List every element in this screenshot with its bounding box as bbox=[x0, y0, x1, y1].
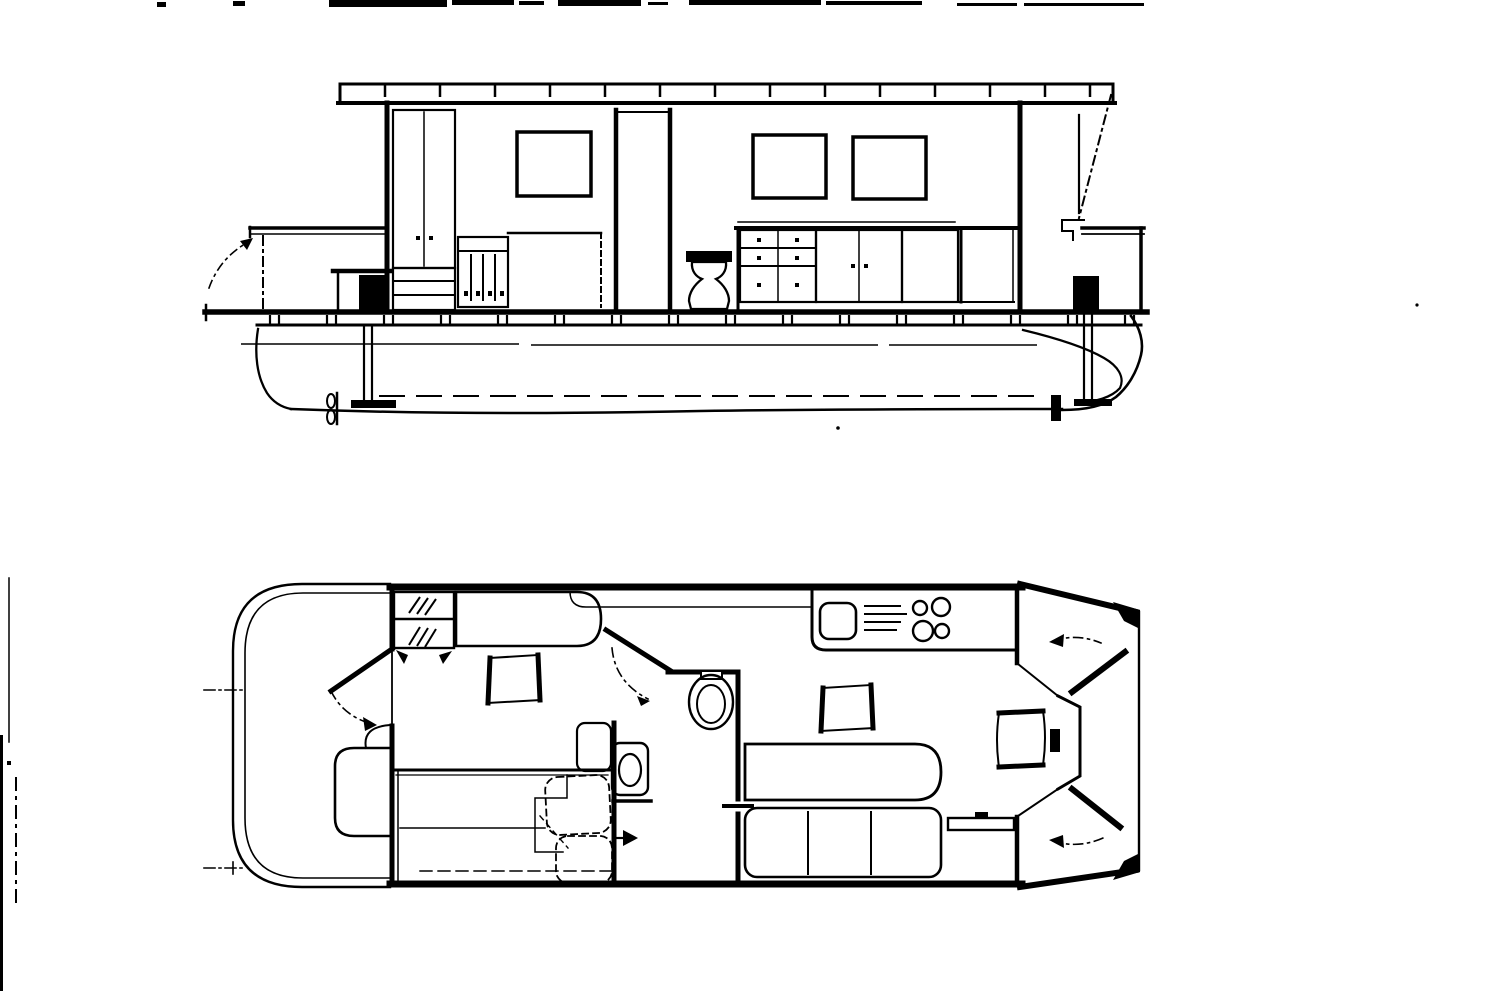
washbasin-cabinet bbox=[612, 743, 648, 795]
deck-plan-view bbox=[204, 584, 1140, 887]
chair-arm bbox=[999, 765, 1043, 767]
swing-arrowhead bbox=[1049, 634, 1064, 647]
settee-3-cushion bbox=[745, 808, 941, 877]
chair-back bbox=[490, 655, 538, 658]
artifact bbox=[7, 761, 11, 765]
bow-cleat-top bbox=[1113, 602, 1140, 629]
armchair-saloon bbox=[821, 685, 873, 731]
chest-outline bbox=[393, 268, 455, 310]
bow-door-leaf-top bbox=[1072, 652, 1125, 692]
artifact bbox=[826, 1, 922, 5]
stove-burner bbox=[935, 624, 949, 638]
artifact-left-border bbox=[0, 735, 3, 991]
wardrobe-handle bbox=[416, 236, 420, 240]
bow-structure bbox=[1051, 95, 1144, 421]
side-elevation-view bbox=[205, 84, 1147, 424]
cabinet-knob bbox=[864, 264, 868, 268]
counter-front bbox=[812, 592, 1016, 650]
artifact bbox=[558, 0, 641, 6]
toilet-pedestal bbox=[689, 262, 729, 309]
toilet-bowl-outer bbox=[689, 675, 733, 729]
artifact bbox=[329, 0, 447, 7]
cabinet-knob bbox=[851, 264, 855, 268]
washbasin-bowl bbox=[619, 754, 641, 786]
bathroom-partition bbox=[616, 110, 670, 310]
helm-chair bbox=[997, 711, 1045, 767]
chair-arm bbox=[538, 655, 540, 700]
bedroom bbox=[396, 723, 614, 884]
drawer-knob bbox=[757, 256, 761, 260]
swing-arrowhead bbox=[1049, 835, 1064, 848]
swing-arrowhead bbox=[637, 696, 650, 706]
locker-knob bbox=[488, 291, 492, 296]
wardrobe bbox=[393, 110, 455, 268]
artifact bbox=[519, 1, 544, 5]
propeller-blade bbox=[327, 394, 335, 408]
cabin-window-3 bbox=[853, 137, 926, 199]
bow-step bbox=[1062, 220, 1084, 240]
hatched-locker bbox=[394, 592, 454, 648]
chair-front bbox=[821, 728, 873, 731]
drawer-knob bbox=[795, 283, 799, 287]
bow-hull-outer bbox=[1062, 316, 1142, 410]
berth-elevation bbox=[508, 233, 601, 307]
shelf-tab bbox=[975, 812, 988, 819]
stern-deck-seat bbox=[335, 725, 390, 836]
door-stop-arrow bbox=[623, 830, 638, 846]
side-shelf bbox=[948, 812, 1014, 830]
chair-back bbox=[823, 685, 871, 688]
cabin-window-2 bbox=[753, 135, 826, 198]
stern-door-leaf bbox=[331, 649, 392, 691]
roof-slab bbox=[338, 84, 1115, 103]
helm-console bbox=[1058, 696, 1080, 789]
chair-arm bbox=[999, 711, 1043, 713]
galley-plan bbox=[812, 592, 1016, 650]
drawer-knob bbox=[795, 238, 799, 242]
chair-front bbox=[488, 700, 540, 703]
waterline-upper bbox=[241, 344, 1037, 345]
locker-knob bbox=[464, 291, 468, 296]
artifact-dot bbox=[1415, 303, 1418, 306]
artifact bbox=[957, 3, 1017, 6]
drainboard-lines bbox=[864, 606, 907, 630]
side-shelf-line bbox=[570, 592, 810, 607]
drawer-knob bbox=[795, 256, 799, 260]
stove-burner bbox=[932, 598, 950, 616]
cabin-window-1 bbox=[517, 132, 591, 196]
bow-hull-inner bbox=[1023, 330, 1122, 403]
plan-hull-outline bbox=[204, 584, 1140, 887]
windshield-dashdot bbox=[1079, 95, 1111, 218]
stern-hull-curve bbox=[256, 329, 291, 409]
bedside-cabinet bbox=[577, 723, 611, 771]
drawer-chest bbox=[393, 268, 455, 310]
swing-tick bbox=[439, 651, 452, 664]
toilet-elevation bbox=[686, 251, 732, 309]
deck-and-hull bbox=[205, 305, 1147, 413]
arc-arrowhead bbox=[240, 238, 253, 250]
artifact bbox=[1024, 3, 1144, 6]
bath-diagonal-wall bbox=[606, 630, 671, 671]
bathroom bbox=[606, 630, 752, 884]
bulkhead-diagonal-top bbox=[1018, 664, 1058, 696]
stern-box bbox=[359, 275, 388, 311]
blanket-diagonal bbox=[540, 816, 568, 848]
hatch-marks bbox=[409, 597, 436, 647]
chair-arm bbox=[871, 685, 873, 728]
drawer-knob bbox=[757, 238, 761, 242]
end-cabinet bbox=[902, 230, 958, 302]
artifact bbox=[452, 0, 514, 5]
bow-motor bbox=[1073, 276, 1099, 311]
galley-elevation bbox=[736, 222, 1016, 308]
swing-tick bbox=[396, 650, 408, 664]
pillow-2 bbox=[556, 836, 612, 883]
toilet-tank bbox=[686, 251, 732, 262]
helm-console-pad bbox=[1050, 729, 1060, 752]
artifact-dot bbox=[836, 426, 840, 430]
roof-outline bbox=[340, 84, 1113, 103]
artifact bbox=[648, 2, 668, 5]
propeller-blade bbox=[327, 410, 335, 424]
scan-artifacts bbox=[0, 0, 1419, 991]
stern-strut-plate bbox=[351, 400, 396, 408]
bulkhead-diagonal-bottom bbox=[1018, 789, 1058, 816]
pillow-1 bbox=[545, 774, 612, 835]
roof-plank-ticks bbox=[385, 84, 1090, 97]
bow-door-leaf-bottom bbox=[1072, 789, 1120, 827]
locker-knob bbox=[500, 291, 504, 296]
chair-arm bbox=[488, 658, 490, 703]
armchair-stern bbox=[488, 655, 540, 703]
saloon-berth bbox=[745, 744, 941, 800]
houseboat-drawing bbox=[0, 0, 1500, 991]
stern-door-arc bbox=[209, 241, 250, 288]
seat-outline bbox=[335, 748, 390, 836]
artifact bbox=[157, 2, 166, 7]
helm-and-bow bbox=[997, 591, 1125, 884]
bow-cleat-bottom bbox=[1113, 853, 1140, 880]
sink bbox=[820, 603, 856, 639]
cabin-front-wall bbox=[331, 591, 452, 884]
hull-bottom bbox=[291, 409, 1062, 413]
wardrobe-handle bbox=[429, 236, 433, 240]
shelf-outline bbox=[948, 818, 1014, 830]
stove-burner bbox=[913, 621, 933, 641]
drawer-knob bbox=[757, 283, 761, 287]
chair-arm bbox=[821, 688, 823, 731]
chair-front bbox=[1043, 711, 1045, 765]
cabin-sofa bbox=[456, 592, 601, 646]
stove-burner bbox=[913, 601, 927, 615]
toilet-bowl-inner bbox=[697, 685, 725, 723]
artifact bbox=[233, 1, 245, 6]
drawing-sheet bbox=[0, 0, 1500, 991]
shelf-locker bbox=[458, 237, 508, 307]
locker-knob bbox=[476, 291, 480, 296]
artifact bbox=[689, 0, 821, 5]
chair-back bbox=[997, 713, 999, 767]
settee-outline bbox=[745, 808, 941, 877]
